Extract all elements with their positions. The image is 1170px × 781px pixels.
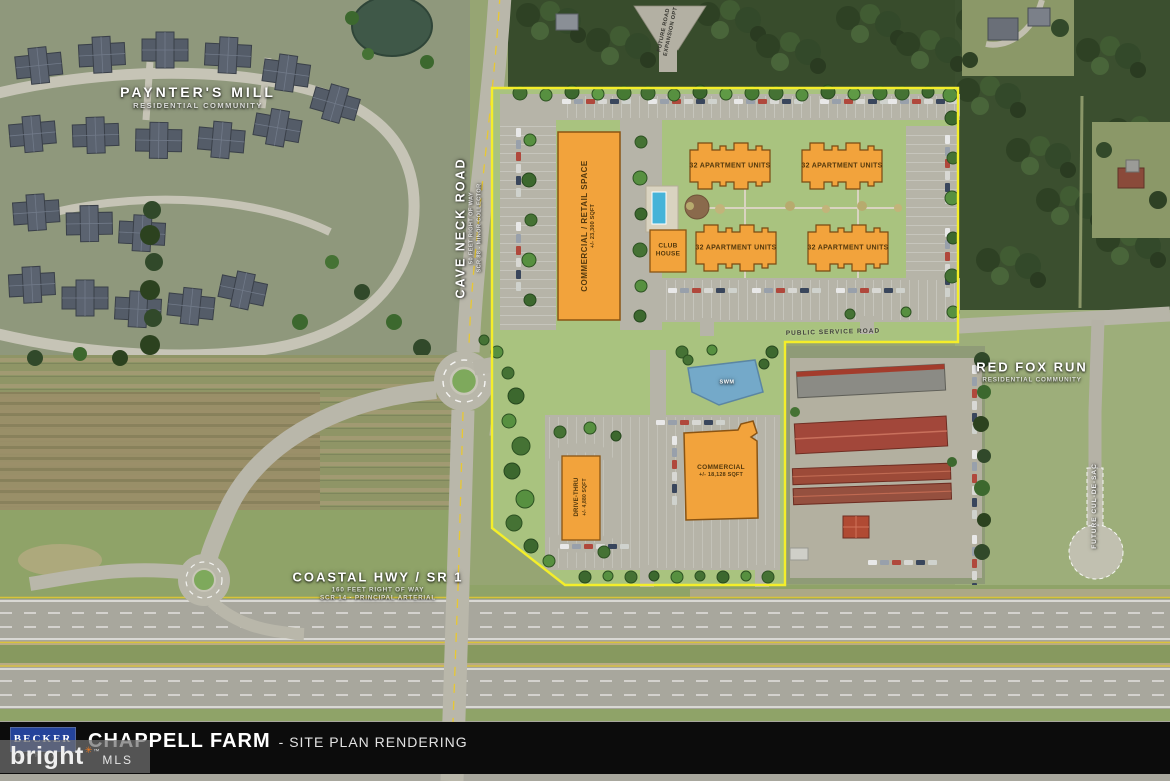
bright-mls-watermark: bright ✳ ™ MLS bbox=[0, 740, 150, 773]
label-apartments-2: 32 APARTMENT UNITS bbox=[801, 161, 882, 170]
cave-neck-class: SCR 88 - MINOR COLLECTOR bbox=[476, 158, 483, 299]
retail-name: COMMERCIAL / RETAIL SPACE bbox=[580, 160, 590, 291]
pool bbox=[652, 192, 666, 224]
label-drive-thru: DRIVE-THRU +/- 4,880 SQFT bbox=[574, 478, 588, 517]
pond bbox=[352, 0, 432, 56]
red-fox-run-subtitle: RESIDENTIAL COMMUNITY bbox=[976, 376, 1088, 384]
cave-neck-row: 50 FEET RIGHT OF WAY bbox=[469, 158, 476, 299]
retail-area: +/- 23,300 SQFT bbox=[591, 160, 598, 291]
drive-thru-area: +/- 4,880 SQFT bbox=[582, 478, 589, 517]
label-apartments-4: 32 APARTMENT UNITS bbox=[807, 243, 888, 252]
label-cave-neck-road: CAVE NECK ROAD 50 FEET RIGHT OF WAY SCR … bbox=[453, 158, 484, 299]
red-fox-run-area bbox=[785, 346, 991, 604]
cave-neck-name: CAVE NECK ROAD bbox=[453, 158, 469, 299]
label-future-cul-de-sac: FUTURE CUL-DE-SAC bbox=[1091, 463, 1099, 549]
label-retail-building: COMMERCIAL / RETAIL SPACE +/- 23,300 SQF… bbox=[580, 160, 598, 291]
watermark-suffix: MLS bbox=[102, 753, 133, 767]
coastal-hwy-class: SCR 14 - PRINCIPAL ARTERIAL bbox=[292, 594, 463, 602]
project-subtitle: - SITE PLAN RENDERING bbox=[279, 734, 468, 750]
label-red-fox-run: RED FOX RUN RESIDENTIAL COMMUNITY bbox=[976, 359, 1088, 384]
paynters-mill-title: PAYNTER'S MILL bbox=[120, 83, 276, 101]
paynters-mill-subtitle: RESIDENTIAL COMMUNITY bbox=[120, 101, 276, 111]
label-apartments-3: 32 APARTMENT UNITS bbox=[695, 243, 776, 252]
club-house-line1: CLUB bbox=[656, 243, 681, 251]
red-fox-run-title: RED FOX RUN bbox=[976, 359, 1088, 376]
drive-thru-name: DRIVE-THRU bbox=[574, 478, 582, 517]
aerial-basemap bbox=[0, 0, 1170, 781]
watermark-brand: bright bbox=[10, 744, 84, 769]
watermark-tm: ™ bbox=[93, 749, 99, 755]
site-plan-rendering: PAYNTER'S MILL RESIDENTIAL COMMUNITY CAV… bbox=[0, 0, 1170, 781]
label-coastal-hwy: COASTAL HWY / SR 1 160 FEET RIGHT OF WAY… bbox=[292, 569, 463, 602]
label-commercial-pad: COMMERCIAL +/- 18,128 SQFT bbox=[697, 464, 745, 480]
club-house-line2: HOUSE bbox=[656, 251, 681, 259]
coastal-hwy-name: COASTAL HWY / SR 1 bbox=[292, 569, 463, 586]
label-swm: SWM bbox=[720, 379, 735, 386]
label-paynters-mill: PAYNTER'S MILL RESIDENTIAL COMMUNITY bbox=[120, 83, 276, 111]
farm-fields bbox=[0, 347, 470, 595]
paynters-mill-area bbox=[0, 0, 470, 365]
commercial-name: COMMERCIAL bbox=[697, 464, 745, 472]
watermark-star-icon: ✳ bbox=[85, 745, 93, 756]
commercial-area: +/- 18,128 SQFT bbox=[697, 473, 745, 480]
label-club-house: CLUB HOUSE bbox=[656, 243, 681, 260]
label-apartments-1: 32 APARTMENT UNITS bbox=[689, 161, 770, 170]
coastal-hwy-row: 160 FEET RIGHT OF WAY bbox=[292, 586, 463, 594]
footer-bar: BECKER MORGAN CHAPPELL FARM- SITE PLAN R… bbox=[0, 722, 1170, 774]
